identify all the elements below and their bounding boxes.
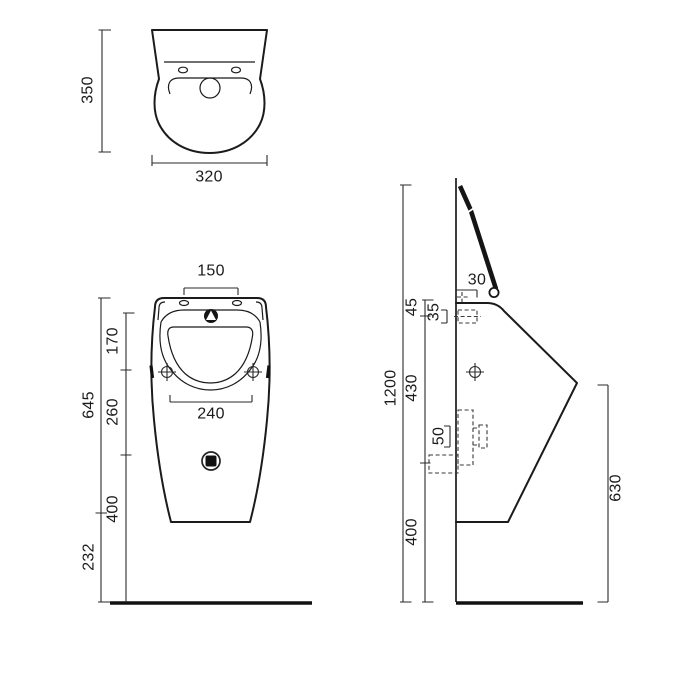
dim-label-holes-to-drain: 260 [105, 398, 122, 426]
front-view-edge-mark-left [151, 366, 153, 379]
front-view-mount-hole-left-icon [158, 363, 176, 381]
side-view-pipe-loop-icon [489, 288, 498, 297]
dim-label-front-edge-height: 630 [608, 474, 625, 502]
top-view-hole-left-icon [179, 67, 188, 73]
side-view-dim-30-line [456, 290, 477, 298]
top-view-dim-width-line [152, 155, 267, 166]
dim-label-side-overall-height: 1200 [383, 370, 400, 407]
dim-label-inlet-offset: 30 [468, 272, 486, 289]
dim-label-bowl-width: 240 [197, 406, 225, 423]
side-view-hidden-outlet-spigot [479, 425, 487, 448]
side-view-hidden-outlet-body [458, 410, 473, 465]
top-view-inlet-circle-icon [200, 78, 220, 98]
dim-label-drain-to-floor: 400 [105, 495, 122, 523]
side-view-hidden-outlet-connectors [473, 428, 479, 445]
front-view-mount-hole-right-icon [244, 363, 262, 381]
dim-label-inlet-depth: 35 [426, 303, 443, 321]
front-view-edge-mark-right [268, 366, 270, 379]
top-view: 350 320 [80, 30, 268, 186]
side-view-mount-hole-icon [466, 363, 484, 381]
front-view-hole-left-icon [180, 301, 189, 306]
dim-label-inlet-spacing: 150 [197, 263, 225, 280]
drawing-svg: 350 320 [0, 0, 700, 700]
top-view-hole-right-icon [232, 67, 241, 73]
front-view-hole-right-icon [233, 301, 242, 306]
front-view-dim-inner-line [121, 313, 135, 602]
side-view-profile-outline [456, 303, 577, 522]
front-view-bowl-outer [160, 322, 261, 390]
front-view-drain-square-icon [206, 456, 217, 467]
dim-label-rim-to-holes: 170 [105, 327, 122, 355]
front-view-bowl-inner [168, 327, 253, 383]
dim-label-top-width: 320 [195, 169, 223, 186]
side-view-hidden-inlet-centerline [457, 292, 468, 302]
front-view-dim-240-line [170, 395, 252, 402]
dim-label-side-bottom-to-floor: 400 [404, 518, 421, 546]
side-view: 30 1200 45 430 400 35 50 630 [383, 178, 625, 603]
dim-label-rim-to-inlet: 45 [404, 298, 421, 316]
side-view-dim-inner-line [420, 300, 434, 602]
side-view-hidden-wall-pipe [429, 455, 458, 473]
top-view-inner-rim [168, 78, 251, 94]
top-view-dim-height-line [99, 30, 112, 152]
technical-drawing-page: 350 320 [0, 0, 700, 700]
dim-label-rim-to-outlet: 430 [404, 374, 421, 402]
dim-label-top-height: 350 [80, 76, 97, 104]
dim-label-outlet-size: 50 [431, 427, 448, 445]
dim-label-bottom-to-floor: 232 [81, 543, 98, 571]
front-view: 150 240 645 232 170 260 400 [81, 263, 313, 604]
side-view-dim-630-line [598, 385, 609, 602]
front-view-dim-150-line [184, 288, 238, 295]
dim-label-overall-height: 645 [81, 391, 98, 419]
